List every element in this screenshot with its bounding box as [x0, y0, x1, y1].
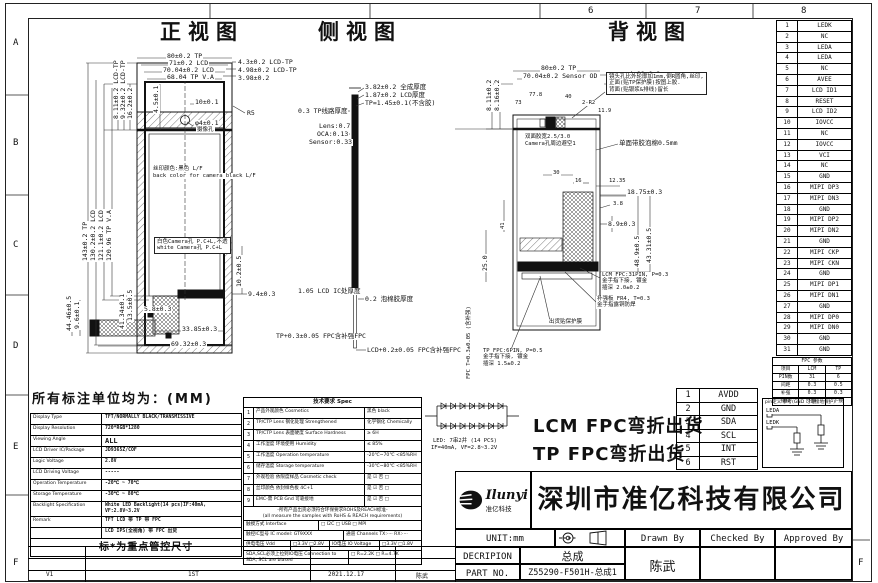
tech-table-title: 技术要求 Spec: [244, 398, 421, 408]
spec-value: TFT LCD 带 TP 带 FPC: [102, 517, 241, 527]
tp-pin-number: 4: [677, 430, 700, 443]
dimension-label: 5.8±0.3: [143, 306, 172, 313]
dimension-label: 48.9±0.5: [634, 235, 641, 268]
spec-value: 2.8V: [102, 458, 241, 468]
pin-row: 22 MIPI CKP: [777, 248, 851, 259]
tp-pin-name: SCL: [700, 430, 757, 443]
pin-name: MIPI CKP: [798, 248, 851, 258]
spec-value: LCD IPS(全视角) 带 FPC 出货: [102, 528, 241, 538]
pin-row: 24 GND: [777, 269, 851, 280]
ic-row: 触控IC型号 IC model: GT9XXX 通道 Channels TX:·…: [244, 531, 421, 541]
dimension-label: 3.8: [612, 201, 624, 207]
tp-pin-row: 4 SCL: [677, 430, 757, 444]
spec-label: Display Type: [31, 414, 102, 424]
pin-number: 14: [777, 161, 798, 171]
pin-number: 6: [777, 75, 798, 85]
spec-value: -30℃ ~ 80℃: [102, 491, 241, 501]
spec-label: Storage Temperature: [31, 491, 102, 501]
pin-name: MIPI DN2: [798, 226, 851, 236]
pin-row: 28 MIPI DP0: [777, 313, 851, 324]
spec-label: Operation Temperature: [31, 480, 102, 490]
dimension-label: Camera孔周边避空1: [524, 141, 577, 147]
pin-row: 17 MIPI DN3: [777, 194, 851, 205]
dimension-label: 77.8: [528, 92, 543, 98]
pin-number: 16: [777, 183, 798, 193]
pin-name: MIPI CKN: [798, 259, 851, 269]
fpc-table-row: 补强 0.3 0.3: [773, 390, 851, 398]
dimension-label: TP=1.45±0.1(不含胶): [364, 100, 436, 107]
pin-number: 21: [777, 237, 798, 247]
pin-row: 20 MIPI DN2: [777, 226, 851, 237]
logo-wordmark: Ilunyi: [486, 488, 528, 503]
pin-row: 31 GND: [777, 345, 851, 355]
dimension-label: 16: [574, 178, 583, 184]
logo-cell: Ilunyi 准亿科技: [455, 471, 531, 529]
lcm-pin-table: 1 LEDK 2 NC 3 LEDA 4 LEDA 5 NC: [776, 20, 852, 356]
drawn-by-header: Drawn By: [625, 529, 700, 547]
spec-value: TFT/NORMALLY BLACK/TRANSMISSIVE: [102, 414, 241, 424]
projection-symbols-icon: [556, 530, 624, 546]
dimension-label: 16.2±0.2: [127, 87, 134, 120]
tp-pin-row: 3 SDA: [677, 416, 757, 430]
pin-row: 3 LEDA: [777, 43, 851, 54]
tp-pin-name: INT: [700, 443, 757, 456]
pin-definition-box: pin定义 参考(GND 可靠接地保护) LEDA LEDK: [762, 398, 844, 468]
dimension-label: 双面胶宽2.5/3.0: [524, 134, 571, 140]
pin-row: 27 GND: [777, 302, 851, 313]
pin-number: 8: [777, 97, 798, 107]
dimension-label: back color for camera black L/F: [152, 173, 257, 179]
dimension-label: 9.6±0.1: [74, 301, 81, 330]
revision-date: 2021.12.17: [328, 571, 364, 578]
decription-value: 总成: [520, 547, 625, 564]
pin-number: 27: [777, 302, 798, 312]
dimension-label: Sensor:0.33: [308, 139, 353, 146]
dimension-label: 18.75±0.3: [626, 189, 663, 196]
pin-number: 19: [777, 215, 798, 225]
pin-name: LEDK: [798, 21, 851, 31]
dimension-label: 8.9±0.3: [607, 221, 636, 228]
dimension-label: 12.35: [608, 178, 627, 184]
spec-row: Operation Temperature -20℃ ~ 70℃: [31, 480, 241, 491]
dimension-label: TP FPC:6PIN, P=0.5金手指下接, 镀金插深 1.5±0.2: [482, 348, 544, 367]
spec-row: LCD IPS(全视角) 带 FPC 出货: [31, 528, 241, 539]
fpc-table-head: 项目 LCM TP: [773, 366, 851, 374]
spec-label: Logic Voltage: [31, 458, 102, 468]
spec-label: LCD Driving Voltage: [31, 469, 102, 479]
pin-number: 31: [777, 345, 798, 355]
tp-pin-number: 2: [677, 403, 700, 416]
dimension-label: 白色Camera孔 P.C+L,不透white Camera孔 P.C+L: [154, 237, 231, 254]
pin-number: 29: [777, 323, 798, 333]
tp-pin-row: 6 RST: [677, 457, 757, 470]
pin-row: 29 MIPI DN0: [777, 323, 851, 334]
pin-number: 28: [777, 313, 798, 323]
tp-fpc-ship-note: TP FPC弯折出货: [533, 440, 685, 466]
rohs-note: -所有产品出货必须符合环保要求ROHS及REACH标准- (all measur…: [244, 507, 421, 521]
pin-name: GND: [798, 334, 851, 344]
pin-number: 25: [777, 280, 798, 290]
pin-note-leda-label: LEDA: [765, 408, 780, 414]
dimension-label: 73: [514, 100, 523, 106]
dimension-label: 补强板 FR4, T=0.3金手指露铜防焊: [596, 296, 651, 309]
spec-table-body: Display Type TFT/NORMALLY BLACK/TRANSMIS…: [31, 414, 241, 539]
pin-name: MIPI DP3: [798, 183, 851, 193]
tech-row: 5 工作温度 Operation temperature -20℃~70℃ <8…: [244, 452, 421, 463]
pin-name: NC: [798, 64, 851, 74]
tech-row: 1 产品外观颜色 Cosmetics 黑色 black: [244, 408, 421, 419]
tp-pin-name: RST: [700, 457, 757, 470]
side-view-title: 侧视图: [318, 16, 402, 46]
approved-by-empty: [775, 547, 852, 580]
revision-version: V1: [46, 571, 53, 578]
spec-value: -20℃ ~ 70℃: [102, 480, 241, 490]
checked-by-header: Checked By: [700, 529, 775, 547]
dimension-label: FPC T=0.3±0.05 (含补强): [466, 305, 472, 380]
tech-row: 7 外观检验 依限度样品 Cosmetic check 是 ☑ 否 □: [244, 474, 421, 485]
pin-note-ledk-label: LEDK: [765, 420, 780, 426]
part-no-label: PART NO.: [455, 564, 520, 580]
tech-table-body: 1 产品外观颜色 Cosmetics 黑色 black 2 TP/CTP Len…: [244, 408, 421, 507]
pin-row: 26 MIPI DN1: [777, 291, 851, 302]
pin-name: MIPI DN3: [798, 194, 851, 204]
pin-row: 11 NC: [777, 129, 851, 140]
pin-row: 25 MIPI DP1: [777, 280, 851, 291]
dimension-label: 25.0: [482, 254, 489, 272]
pin-row: 18 GND: [777, 205, 851, 216]
pin-name: NC: [798, 129, 851, 139]
logo-subtext: 准亿科技: [486, 503, 528, 513]
dimension-label: 11.9: [597, 108, 612, 114]
dimension-label: 8.16±0.2: [494, 79, 501, 112]
pin-number: 7: [777, 86, 798, 96]
spec-value: White LED Backlight(14 pcs)IF:40mA, VF:2…: [102, 502, 241, 516]
pin-name: GND: [798, 302, 851, 312]
pin-name: IOVCC: [798, 118, 851, 128]
dimension-label: 出货贴保护膜: [548, 319, 583, 325]
pin-number: 26: [777, 291, 798, 301]
pin-row: 1 LEDK: [777, 21, 851, 32]
pin-definition-title: pin定义 参考(GND 可靠接地保护): [763, 399, 843, 407]
dimension-label: 镜头孔比外轮廓加1mm,倒R圆角,丝印,正面(贴TP保护膜)按图上胶.背面(贴银…: [606, 72, 707, 95]
pin-number: 4: [777, 53, 798, 63]
spec-row: Logic Voltage 2.8V: [31, 458, 241, 469]
revision-author: 陈武: [416, 571, 428, 580]
pin-row: 7 LCD ID1: [777, 86, 851, 97]
tp-pin-row: 1 AVDD: [677, 389, 757, 403]
pin-row: 8 RESET: [777, 97, 851, 108]
dimension-label: 120.96 TP V.A: [106, 209, 113, 262]
tp-pin-number: 6: [677, 457, 700, 470]
dimension-label: 摄像孔: [196, 127, 215, 133]
spec-row: Display Type TFT/NORMALLY BLACK/TRANSMIS…: [31, 414, 241, 425]
tech-row: 3 TP/CTP Lens 表面硬度 Surface Hardness ≥ 6H: [244, 430, 421, 441]
pin-row: 14 NC: [777, 161, 851, 172]
pin-row: 16 MIPI DP3: [777, 183, 851, 194]
title-block: Ilunyi 准亿科技 深圳市准亿科技有限公司 UNIT:mm Drawn By…: [455, 471, 852, 580]
pin-name: LCD ID1: [798, 86, 851, 96]
pin-row: 23 MIPI CKN: [777, 259, 851, 270]
interface-options: □ I2C □ USB □ MPI: [319, 521, 421, 530]
drawing-sheet: 678 ABCDEF F: [0, 0, 878, 583]
tech-row: 9 EMC-需 PCB Gnd 可靠接地 是 ☑ 否 □: [244, 496, 421, 507]
approved-by-header: Approved By: [775, 529, 852, 547]
pin-number: 12: [777, 140, 798, 150]
dimension-label: 43.31±0.5: [646, 227, 653, 264]
pin-name: LCD ID2: [798, 107, 851, 117]
tp-pin-name: GND: [700, 403, 757, 416]
pin-row: 15 GND: [777, 172, 851, 183]
spec-value: 720*RGB*1280: [102, 425, 241, 435]
company-logo-icon: [458, 486, 484, 514]
dimension-label: LCM FPC:31PIN, P=0.3金手指下接, 镀金插深 2.0±0.2: [601, 272, 669, 291]
pin-name: LEDA: [798, 43, 851, 53]
pin-row: 6 AVEE: [777, 75, 851, 86]
pin-name: LEDA: [798, 53, 851, 63]
tech-row: 2 TP/CTP Lens 钢化处理 Strengthened 化学钢化 Che…: [244, 419, 421, 430]
spec-row: Display Resolution 720*RGB*1280: [31, 425, 241, 436]
dimension-label: 30: [552, 170, 561, 176]
pin-name: GND: [798, 172, 851, 182]
pin-row: 9 LCD ID2: [777, 107, 851, 118]
spec-label: LCD Driver IC/Package: [31, 447, 102, 457]
tp-pin-name: AVDD: [700, 389, 757, 402]
pin-number: 10: [777, 118, 798, 128]
pin-number: 17: [777, 194, 798, 204]
spec-label: [31, 528, 102, 538]
pin-name: NC: [798, 32, 851, 42]
pin-name: MIPI DP2: [798, 215, 851, 225]
tech-row: 4 工作湿度 环境使用 Humidity ≤ 85%: [244, 441, 421, 452]
pin-row: 4 LEDA: [777, 53, 851, 64]
dimension-label: 33.85±0.3: [181, 326, 218, 333]
tp-pin-number: 5: [677, 443, 700, 456]
pin-row: 21 GND: [777, 237, 851, 248]
pin-number: 20: [777, 226, 798, 236]
backlight-led-circuit: [425, 398, 520, 438]
dimension-label: 0.2 泡棉胶厚度: [364, 296, 414, 303]
pin-name: MIPI DP1: [798, 280, 851, 290]
tp-pin-number: 3: [677, 416, 700, 429]
dimension-label: R5: [246, 110, 256, 117]
pin-number: 5: [777, 64, 798, 74]
tp-pin-table: 1 AVDD 2 GND 3 SDA 4 SCL 5 INT: [676, 388, 758, 470]
pin-number: 30: [777, 334, 798, 344]
pin-row: 5 NC: [777, 64, 851, 75]
dimension-label: 单面带胶泡棉0.5mm: [618, 140, 679, 147]
dimension-label: 1.05 LCD IC处厚度: [297, 288, 362, 295]
pin-name: IOVCC: [798, 140, 851, 150]
tp-pin-row: 2 GND: [677, 403, 757, 417]
company-name: 深圳市准亿科技有限公司: [531, 471, 852, 529]
dimension-label: 9.4±0.3: [247, 291, 276, 298]
dimension-label: 4.5±0.1: [153, 85, 160, 114]
pin-name: AVEE: [798, 75, 851, 85]
dimension-label: 13.5±0.5: [127, 289, 134, 322]
pin-number: 23: [777, 259, 798, 269]
unit-note: 所有标注单位均为：(MM): [32, 388, 213, 407]
spec-label: Backlight Specification: [31, 502, 102, 516]
pin-number: 9: [777, 107, 798, 117]
pin-number: 24: [777, 269, 798, 279]
spec-row: Backlight Specification White LED Backli…: [31, 502, 241, 517]
pin-number: 18: [777, 205, 798, 215]
tp-pin-row: 5 INT: [677, 443, 757, 457]
tp-pin-number: 1: [677, 389, 700, 402]
pin-row: 13 VCI: [777, 151, 851, 162]
spec-label: Remark: [31, 517, 102, 527]
revision-strip: V1 1ST 2021.12.17 陈武: [28, 546, 455, 582]
revision-description: 1ST: [188, 571, 199, 578]
spec-row: Storage Temperature -30℃ ~ 80℃: [31, 491, 241, 502]
tech-requirements-table: 技术要求 Spec 1 产品外观颜色 Cosmetics 黑色 black 2 …: [243, 397, 422, 565]
pin-row: 2 NC: [777, 32, 851, 43]
dimension-label: 68.04 TP V.A: [166, 74, 215, 81]
spec-label: Display Resolution: [31, 425, 102, 435]
spec-row: Viewing Angle ALL: [31, 436, 241, 447]
dimension-label: LCD+0.2±0.05 FPC含补强FPC: [366, 347, 462, 354]
dimension-label: 41: [500, 221, 506, 230]
pin-name: NC: [798, 161, 851, 171]
tp-pin-name: SDA: [700, 416, 757, 429]
pin-row: 19 MIPI DP2: [777, 215, 851, 226]
dimension-label: 40: [564, 94, 573, 100]
pin-number: 3: [777, 43, 798, 53]
decription-label: DECRIPION: [455, 547, 520, 564]
dimension-label: 69.32±0.3: [170, 341, 207, 348]
pin-number: 11: [777, 129, 798, 139]
fpc-table-row: PIN数 31 6: [773, 374, 851, 382]
spec-row: LCD Driver IC/Package JD9365Z/COF: [31, 447, 241, 458]
projection-symbol-cell: [555, 529, 625, 547]
pin-name: MIPI DP0: [798, 313, 851, 323]
pin-row: 10 IOVCC: [777, 118, 851, 129]
pin-row: 30 GND: [777, 334, 851, 345]
fpc-table-title: FPC 参数: [773, 358, 851, 366]
tech-row: 6 储存温度 Storage temperature -30℃~80℃ <85%…: [244, 463, 421, 474]
pin-name: GND: [798, 205, 851, 215]
spec-row: LCD Driving Voltage -----: [31, 469, 241, 480]
pin-name: MIPI DN1: [798, 291, 851, 301]
dimension-label: 0.3 TP线路厚度: [297, 108, 348, 115]
pin-name: RESET: [798, 97, 851, 107]
dimension-label: 70.04±0.2 Sensor OD: [522, 73, 598, 80]
pin-name: MIPI DN0: [798, 323, 851, 333]
checked-by-empty: [700, 547, 775, 580]
pin-row: 12 IOVCC: [777, 140, 851, 151]
dimension-label: TP+0.3±0.05 FPC含补强FPC: [275, 333, 367, 340]
pin-name: GND: [798, 269, 851, 279]
spec-value: -----: [102, 469, 241, 479]
pin-number: 22: [777, 248, 798, 258]
part-no-value: Z55290-F501H-总成1: [520, 564, 625, 580]
dimension-label: 3.98±0.2: [237, 75, 270, 82]
interface-row: 触摸方式 Interface □ I2C □ USB □ MPI: [244, 521, 421, 531]
dimension-label: 10.2±0.5: [236, 255, 243, 288]
drawn-by-name: 陈武: [625, 547, 700, 580]
pin-name: VCI: [798, 151, 851, 161]
tech-row: 8 丝印颜色 依封样色板 4C+1 是 ☑ 否 □: [244, 485, 421, 496]
spec-value: ALL: [102, 436, 241, 446]
dimension-label: 2-R2: [581, 100, 596, 106]
spec-row: Remark TFT LCD 带 TP 带 FPC: [31, 517, 241, 528]
spec-label: Viewing Angle: [31, 436, 102, 446]
pin-number: 15: [777, 172, 798, 182]
spec-value: JD9365Z/COF: [102, 447, 241, 457]
fpc-table-row: 间距 0.3 0.5: [773, 382, 851, 390]
led-note-line1: LED: 7串2并 (14 PCS): [432, 438, 498, 444]
front-view-title: 正视图: [160, 16, 244, 46]
pin-name: GND: [798, 345, 851, 355]
pin-number: 13: [777, 151, 798, 161]
led-note-line2: IF=40mA, VF=2.8~3.2V: [430, 445, 498, 451]
display-spec-table: Display Type TFT/NORMALLY BLACK/TRANSMIS…: [30, 413, 242, 557]
dimension-label: 10±0.1: [194, 99, 219, 106]
pin-number: 1: [777, 21, 798, 31]
pin-number: 2: [777, 32, 798, 42]
unit-cell: UNIT:mm: [455, 529, 555, 547]
pin-name: GND: [798, 237, 851, 247]
back-view-title: 背视图: [608, 16, 692, 46]
dimension-label: 丝印颜色:黑色 L/F: [152, 166, 204, 172]
